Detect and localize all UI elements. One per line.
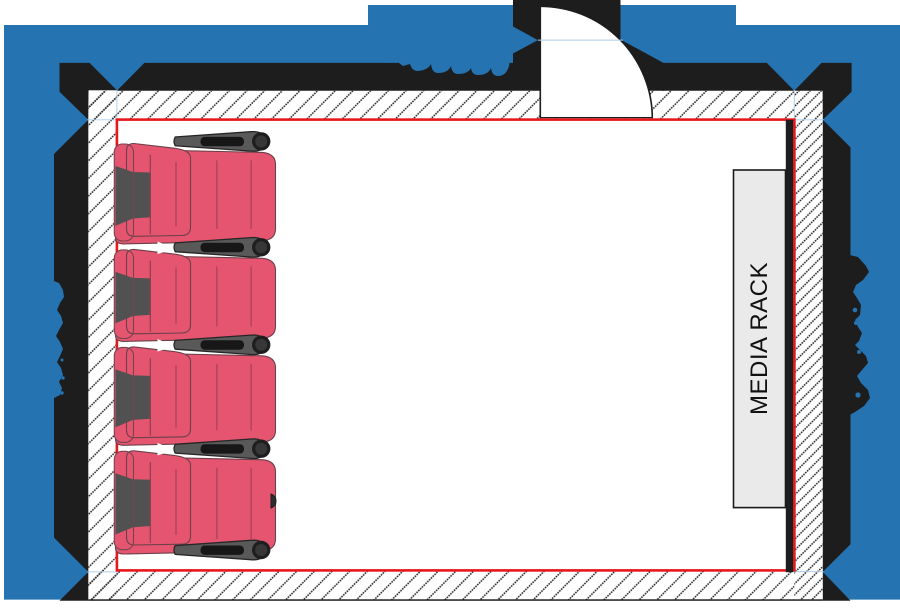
svg-text:MEDIA RACK: MEDIA RACK [746, 262, 773, 415]
